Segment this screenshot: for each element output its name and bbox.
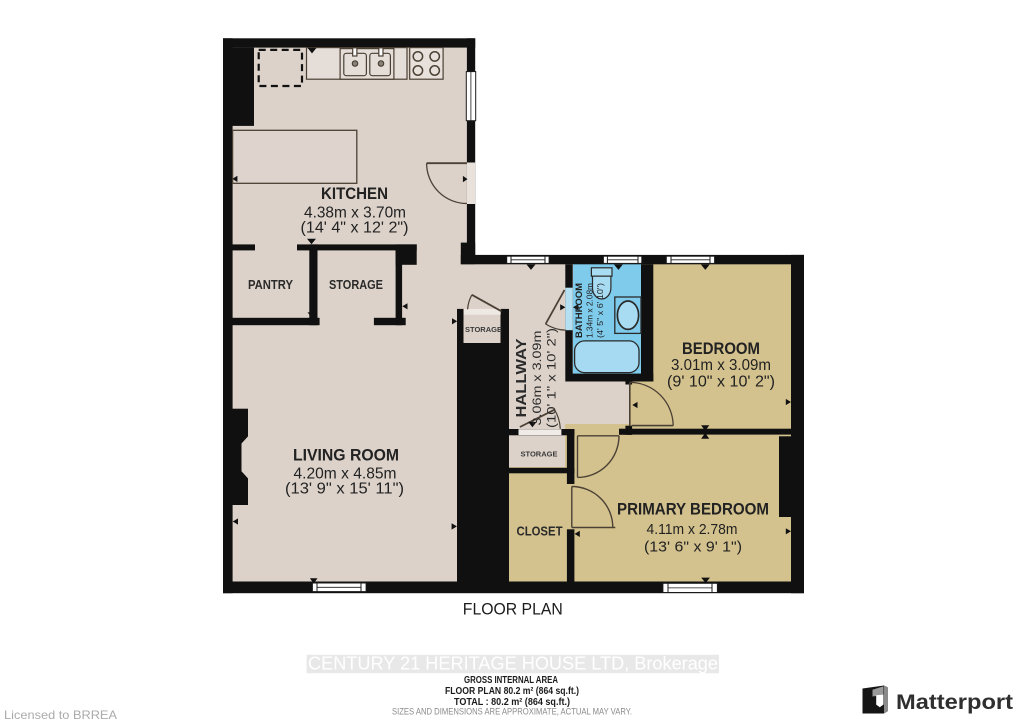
svg-text:CENTURY 21 HERITAGE HOUSE LTD,: CENTURY 21 HERITAGE HOUSE LTD, Brokerage [308, 654, 718, 674]
svg-text:(4' 5" x 6' 10"): (4' 5" x 6' 10") [595, 283, 605, 338]
svg-text:STORAGE: STORAGE [329, 277, 383, 292]
svg-text:(14' 4" x 12' 2"): (14' 4" x 12' 2") [301, 220, 409, 237]
svg-text:HALLWAY: HALLWAY [514, 338, 530, 417]
svg-text:PANTRY: PANTRY [248, 277, 293, 292]
svg-text:BEDROOM: BEDROOM [682, 339, 760, 358]
svg-text:CLOSET: CLOSET [517, 524, 563, 539]
svg-text:3.01m x 3.09m: 3.01m x 3.09m [671, 357, 771, 374]
svg-text:KITCHEN: KITCHEN [321, 184, 388, 203]
svg-text:LIVING ROOM: LIVING ROOM [293, 446, 399, 465]
svg-text:Matterport: Matterport [896, 691, 1013, 714]
svg-text:1.34m x 2.08m: 1.34m x 2.08m [585, 283, 595, 338]
svg-text:3.06m x 3.09m: 3.06m x 3.09m [530, 331, 544, 426]
svg-text:PRIMARY BEDROOM: PRIMARY BEDROOM [617, 501, 769, 519]
svg-text:FLOOR PLAN: FLOOR PLAN [463, 600, 563, 619]
svg-text:STORAGE: STORAGE [521, 449, 558, 458]
svg-text:SIZES AND DIMENSIONS ARE APPRO: SIZES AND DIMENSIONS ARE APPROXIMATE, AC… [392, 707, 632, 718]
svg-text:BATHROOM: BATHROOM [574, 283, 585, 338]
svg-text:(13' 9" x 15' 11"): (13' 9" x 15' 11") [285, 481, 404, 498]
svg-text:(13' 6" x 9' 1"): (13' 6" x 9' 1") [644, 539, 742, 556]
svg-text:4.11m x 2.78m: 4.11m x 2.78m [647, 521, 738, 538]
svg-text:(9' 10" x 10' 2"): (9' 10" x 10' 2") [667, 374, 775, 391]
svg-text:(10' 1" x 10' 2"): (10' 1" x 10' 2") [545, 328, 559, 428]
svg-text:STORAGE: STORAGE [465, 325, 502, 334]
svg-text:Licensed to BRREA: Licensed to BRREA [4, 708, 117, 722]
